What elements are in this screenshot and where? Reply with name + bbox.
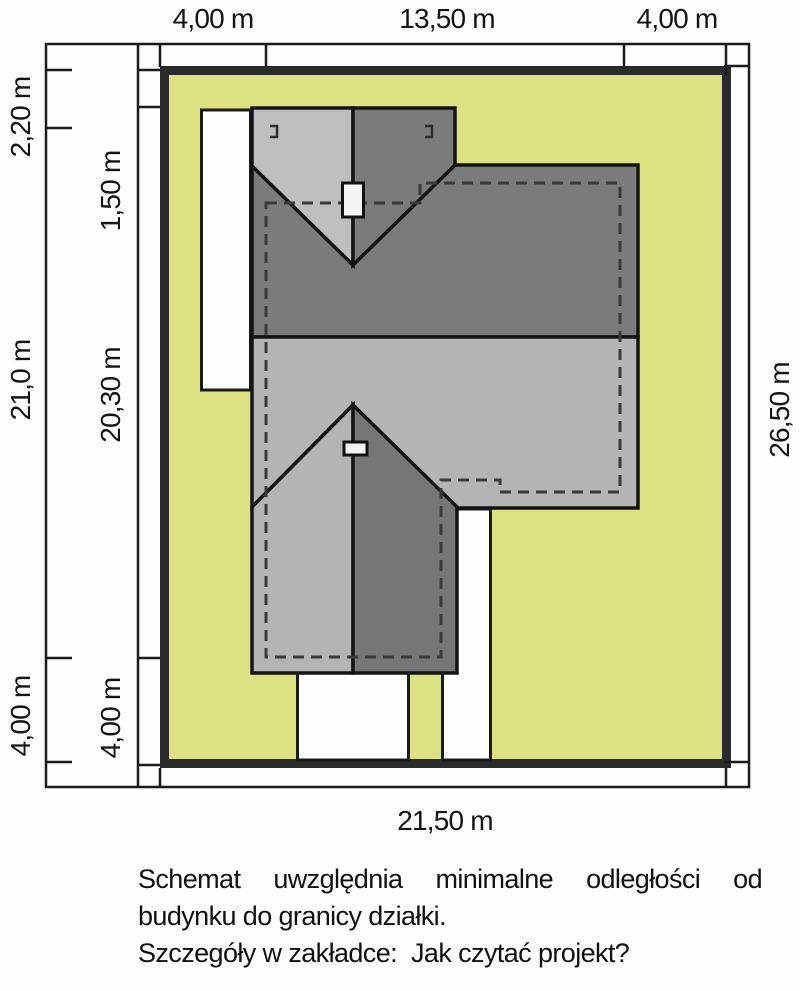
site-plan-figure: 4,00 m 13,50 m 4,00 m 2,20 m 21,0 m 4,00… — [0, 0, 800, 991]
dim-right-total: 26,50 m — [766, 362, 794, 458]
caption-line-2: budynku do granicy działki. — [138, 898, 762, 935]
caption-line-3-suffix: Jak czytać projekt? — [411, 938, 629, 968]
dim-left-inner-top: 1,50 m — [97, 151, 125, 232]
dim-top-right: 4,00 m — [637, 5, 718, 33]
chimney-bottom — [344, 442, 367, 455]
caption-line-3: Szczegóły w zakładce:Jak czytać projekt? — [138, 935, 762, 972]
dim-top-center: 13,50 m — [399, 5, 495, 33]
dim-left-inner-middle: 20,30 m — [97, 347, 125, 443]
caption-line-1: Schemat uwzględnia minimalne odległości … — [138, 861, 762, 898]
site-plan-drawing — [0, 0, 800, 991]
dim-left-outer-bottom: 4,00 m — [7, 676, 35, 757]
dim-bottom-total: 21,50 m — [397, 807, 493, 835]
driveway-strip — [202, 110, 251, 390]
dim-left-inner-bottom: 4,00 m — [97, 678, 125, 759]
dim-left-outer-middle: 21,0 m — [7, 340, 35, 421]
caption-line-3-prefix: Szczegóły w zakładce: — [138, 938, 397, 968]
chimney-top — [343, 183, 364, 217]
dim-top-left: 4,00 m — [173, 5, 254, 33]
walkway-strip-left — [298, 668, 409, 760]
caption: Schemat uwzględnia minimalne odległości … — [138, 861, 762, 972]
dim-left-outer-top: 2,20 m — [7, 77, 35, 158]
